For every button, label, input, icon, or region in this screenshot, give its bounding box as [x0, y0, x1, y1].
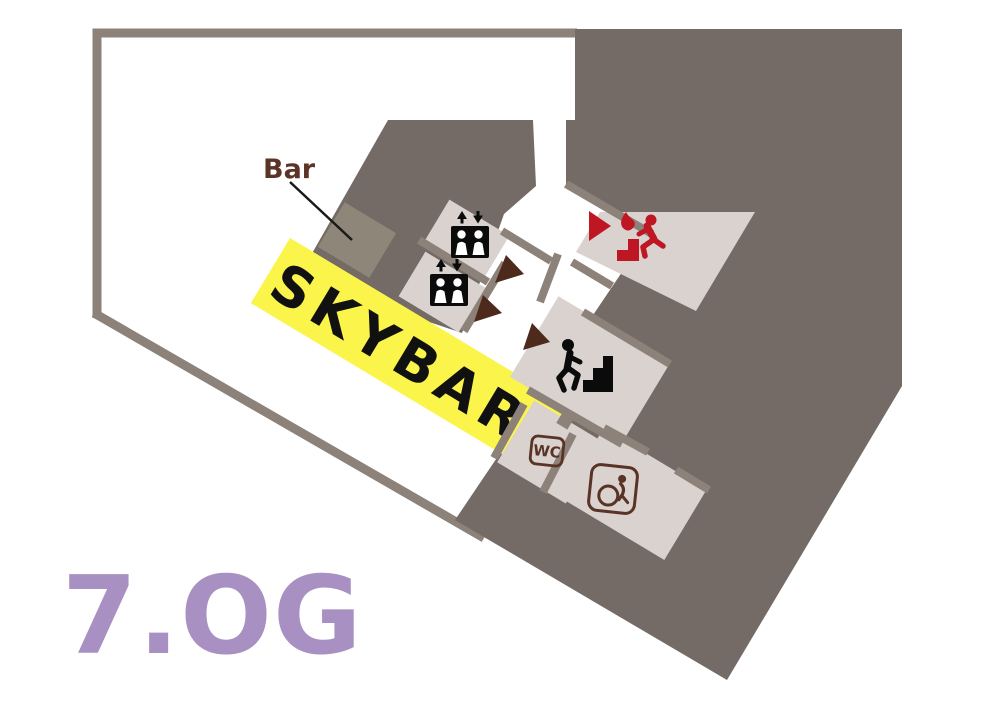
bar-label: Bar: [263, 154, 316, 185]
wc-label: WC: [532, 441, 561, 462]
floor-plan-svg: SKYBAR: [0, 0, 993, 702]
floor-label: 7.OG: [62, 554, 363, 679]
wall-corridor-left-top: [502, 231, 551, 261]
floor-plan-page: SKYBAR: [0, 0, 993, 702]
